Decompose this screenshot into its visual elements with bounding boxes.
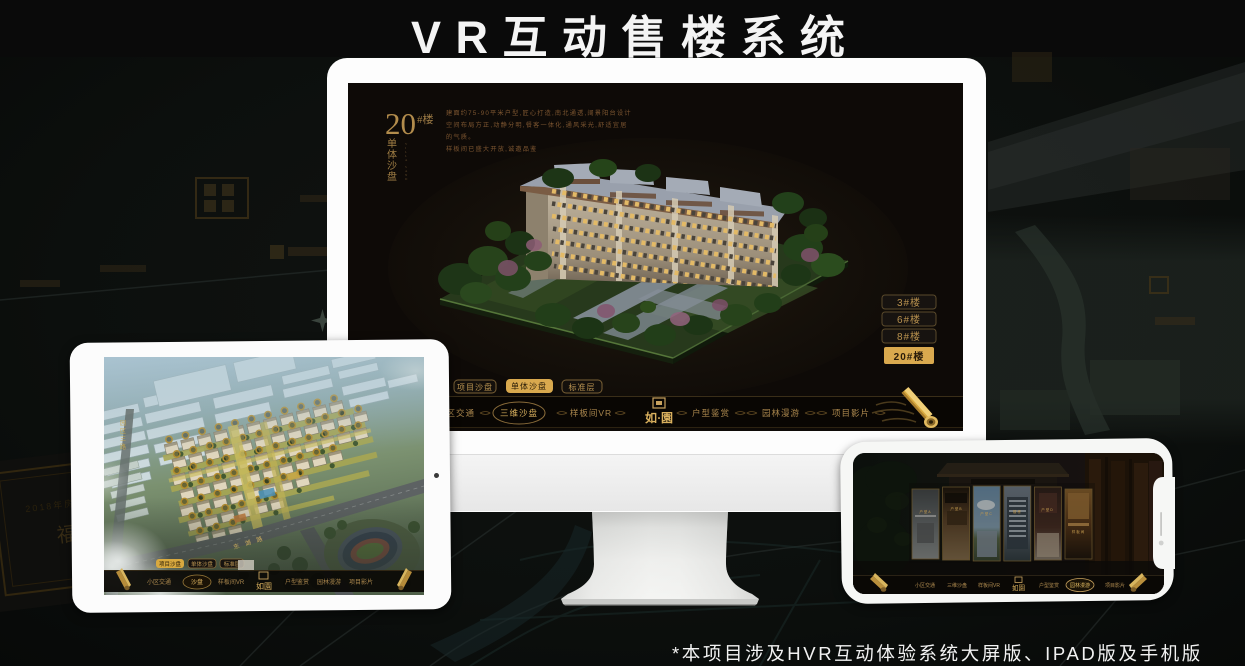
svg-text:#楼: #楼 [417,112,434,126]
svg-text:区: 区 [120,428,126,435]
svg-text:路: 路 [120,443,126,451]
svg-text:园林漫游: 园林漫游 [317,578,341,586]
svg-text:样板间VR: 样板间VR [978,582,1000,589]
svg-text:项目影片: 项目影片 [349,578,373,586]
svg-text:样板间VR: 样板间VR [570,408,612,418]
svg-text:项目沙盘: 项目沙盘 [159,560,182,568]
svg-text:如園: 如園 [256,581,272,591]
svg-text:园: 园 [120,420,126,427]
svg-text:20: 20 [385,106,416,141]
svg-text:单体沙盘: 单体沙盘 [511,381,547,391]
svg-text:单体沙盘: 单体沙盘 [191,560,214,568]
svg-text:户 型 A: 户 型 A [919,509,931,514]
svg-text:户型鉴赏: 户型鉴赏 [692,408,730,418]
svg-text:沙盘: 沙盘 [191,578,203,586]
svg-text:小区交通: 小区交通 [147,578,171,586]
svg-text:沙: 沙 [387,160,397,172]
svg-text:三维沙盘: 三维沙盘 [947,582,967,589]
svg-text:户型鉴赏: 户型鉴赏 [1039,582,1059,589]
svg-text:户 型 B: 户 型 B [950,506,962,511]
svg-text:园林漫游: 园林漫游 [762,408,800,418]
svg-text:园林漫游: 园林漫游 [1070,582,1090,589]
svg-text:户 型 C: 户 型 C [980,511,992,516]
svg-text:户 型 D: 户 型 D [1041,507,1053,512]
svg-text:6#楼: 6#楼 [897,313,921,326]
svg-text:单: 单 [387,138,397,150]
svg-text:标准层: 标准层 [569,382,596,392]
svg-text:楼 栋: 楼 栋 [1013,509,1021,514]
svg-text:项目影片: 项目影片 [832,408,870,418]
svg-text:3#楼: 3#楼 [897,296,921,309]
svg-text:盘: 盘 [387,170,397,183]
svg-text:20#楼: 20#楼 [894,350,925,363]
svg-text:体: 体 [387,149,397,161]
svg-text:如·園: 如·園 [645,410,673,425]
svg-text:三: 三 [120,436,126,443]
svg-text:如園: 如園 [1012,583,1025,592]
svg-text:项目影片: 项目影片 [1105,582,1125,589]
svg-text:建面约75-90平米户型,匠心打造,南北通透,阔景阳台设计: 建面约75-90平米户型,匠心打造,南北通透,阔景阳台设计 [446,109,632,117]
svg-text:户型鉴赏: 户型鉴赏 [285,578,309,586]
svg-text:项目沙盘: 项目沙盘 [457,382,493,392]
svg-text:样 板 间: 样 板 间 [1072,529,1085,534]
svg-text:三维沙盘: 三维沙盘 [500,408,538,418]
svg-text:样板间VR: 样板间VR [218,578,245,586]
svg-text:空间布局方正,动静分明,餐客一体化,通风采光,舒适宜居: 空间布局方正,动静分明,餐客一体化,通风采光,舒适宜居 [446,121,628,129]
svg-text:8#楼: 8#楼 [897,330,921,343]
svg-text:的气质。: 的气质。 [446,133,476,141]
svg-text:小区交通: 小区交通 [915,582,935,589]
svg-text:样板间已盛大开放,诚邀品鉴: 样板间已盛大开放,诚邀品鉴 [446,145,538,153]
